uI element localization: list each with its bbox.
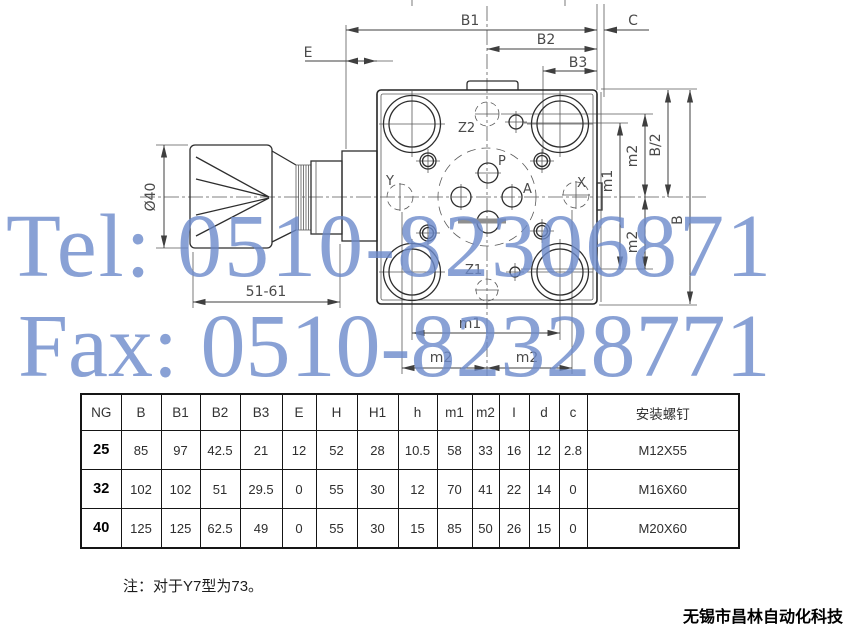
dim-label-e: E <box>304 45 313 61</box>
dim-label-m2-upper: m2 <box>625 145 641 168</box>
table-cell: 70 <box>437 470 472 509</box>
table-cell: 12 <box>398 470 437 509</box>
column-header: B <box>121 394 161 431</box>
port-label-z2: Z2 <box>458 121 475 136</box>
spec-table-body: 25859742.52112522810.5583316122.8M12X553… <box>81 431 739 549</box>
table-cell: 50 <box>472 509 499 549</box>
dim-label-m1-right: m1 <box>600 170 616 193</box>
column-header: h <box>398 394 437 431</box>
table-cell: 52 <box>316 431 357 470</box>
table-cell: 12 <box>282 431 316 470</box>
column-header: E <box>282 394 316 431</box>
footnote: 注：对于Y7型为73。 <box>123 575 263 596</box>
table-cell: 55 <box>316 509 357 549</box>
column-header: d <box>529 394 559 431</box>
row-size-cell: 25 <box>81 431 121 470</box>
table-cell: 49 <box>240 509 282 549</box>
top-tab <box>467 81 518 90</box>
table-cell: 21 <box>240 431 282 470</box>
table-cell: 10.5 <box>398 431 437 470</box>
table-cell: 28 <box>357 431 398 470</box>
dim-label-b2: B2 <box>537 32 556 48</box>
spec-table-header-row: NGBB1B2B3EHH1hm1m2Idc安装螺钉 <box>81 394 739 431</box>
page: Z2 P A Y X Z1 <box>0 0 850 634</box>
row-size-cell: 32 <box>81 470 121 509</box>
port-label-p: P <box>498 154 506 169</box>
spec-table: NGBB1B2B3EHH1hm1m2Idc安装螺钉 25859742.52112… <box>80 393 740 549</box>
table-cell: 14 <box>529 470 559 509</box>
watermark-tel: Tel: 0510-82306871 <box>6 202 773 292</box>
table-cell: 26 <box>499 509 529 549</box>
dim-label-b-half: B/2 <box>648 133 664 156</box>
table-cell: 0 <box>559 509 587 549</box>
column-header: B2 <box>200 394 240 431</box>
column-header: H1 <box>357 394 398 431</box>
table-cell: 102 <box>121 470 161 509</box>
port-label-y: Y <box>385 174 394 189</box>
column-header: m1 <box>437 394 472 431</box>
table-cell: 97 <box>161 431 200 470</box>
company-name: 无锡市昌林自动化科技 <box>683 603 843 627</box>
table-cell: 85 <box>121 431 161 470</box>
table-cell: 102 <box>161 470 200 509</box>
table-cell: M12X55 <box>587 431 739 470</box>
table-cell: 29.5 <box>240 470 282 509</box>
table-cell: 33 <box>472 431 499 470</box>
table-cell: 16 <box>499 431 529 470</box>
table-cell: M16X60 <box>587 470 739 509</box>
column-header: B1 <box>161 394 200 431</box>
table-cell: 0 <box>282 509 316 549</box>
table-cell: 51 <box>200 470 240 509</box>
column-header: c <box>559 394 587 431</box>
row-size-cell: 40 <box>81 509 121 549</box>
table-cell: 125 <box>121 509 161 549</box>
table-cell: 55 <box>316 470 357 509</box>
port-label-a: A <box>523 182 532 197</box>
column-header: I <box>499 394 529 431</box>
table-cell: 0 <box>282 470 316 509</box>
table-cell: 2.8 <box>559 431 587 470</box>
table-cell: 30 <box>357 470 398 509</box>
dim-label-c: C <box>628 13 638 29</box>
column-header: H <box>316 394 357 431</box>
table-cell: 15 <box>529 509 559 549</box>
table-row: 25859742.52112522810.5583316122.8M12X55 <box>81 431 739 470</box>
column-header: B3 <box>240 394 282 431</box>
table-row: 321021025129.50553012704122140M16X60 <box>81 470 739 509</box>
column-header: 安装螺钉 <box>587 394 739 431</box>
watermark-fax: Fax: 0510-82328771 <box>18 302 770 392</box>
table-cell: 58 <box>437 431 472 470</box>
table-cell: 62.5 <box>200 509 240 549</box>
table-cell: 22 <box>499 470 529 509</box>
port-label-x: X <box>577 176 586 191</box>
table-row: 4012512562.5490553015855026150M20X60 <box>81 509 739 549</box>
column-header: m2 <box>472 394 499 431</box>
table-cell: 125 <box>161 509 200 549</box>
table-cell: 85 <box>437 509 472 549</box>
table-cell: 15 <box>398 509 437 549</box>
column-header: NG <box>81 394 121 431</box>
dim-label-b1: B1 <box>461 13 480 29</box>
table-cell: 42.5 <box>200 431 240 470</box>
dim-label-b3: B3 <box>569 55 588 71</box>
table-cell: 0 <box>559 470 587 509</box>
table-cell: 41 <box>472 470 499 509</box>
table-cell: M20X60 <box>587 509 739 549</box>
table-cell: 12 <box>529 431 559 470</box>
table-cell: 30 <box>357 509 398 549</box>
